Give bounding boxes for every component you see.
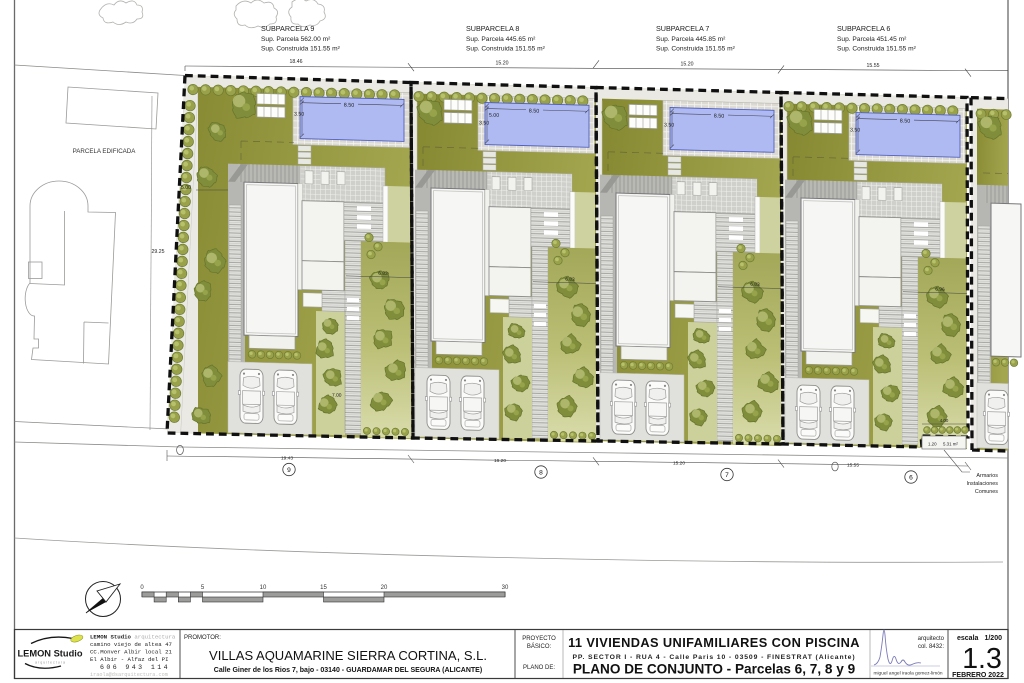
svg-text:VILLAS AQUAMARINE SIERRA CORTI: VILLAS AQUAMARINE SIERRA CORTINA, S.L. <box>209 648 487 663</box>
svg-text:Sup. Parcela 445.65 m²: Sup. Parcela 445.65 m² <box>466 36 536 43</box>
svg-text:LEMON Studio arquitectura: LEMON Studio arquitectura <box>90 634 176 641</box>
svg-text:20: 20 <box>381 585 388 591</box>
svg-text:Sup. Construida 151.55 m²: Sup. Construida 151.55 m² <box>466 46 546 53</box>
svg-text:col. 8432:: col. 8432: <box>918 644 944 650</box>
svg-text:8.50: 8.50 <box>714 113 724 119</box>
svg-text:15.20: 15.20 <box>673 461 685 467</box>
svg-text:6: 6 <box>909 474 913 481</box>
svg-text:7: 7 <box>725 472 729 479</box>
svg-text:arquitecto: arquitecto <box>918 636 945 642</box>
svg-text:8: 8 <box>539 469 543 476</box>
svg-text:15: 15 <box>320 585 327 591</box>
svg-text:SUBPARCELA 8: SUBPARCELA 8 <box>466 24 519 33</box>
svg-text:1.3: 1.3 <box>962 643 1002 675</box>
svg-text:Armarios: Armarios <box>976 473 998 479</box>
svg-text:PLANO DE CONJUNTO - Parcelas 6: PLANO DE CONJUNTO - Parcelas 6, 7, 8 y 9 <box>573 662 856 677</box>
svg-text:BÁSICO:: BÁSICO: <box>527 643 552 650</box>
svg-text:LEMON Studio: LEMON Studio <box>17 649 82 659</box>
svg-text:15.55: 15.55 <box>867 63 880 69</box>
svg-text:PROYECTO: PROYECTO <box>522 636 556 642</box>
svg-text:Sup. Construida 151.55 m²: Sup. Construida 151.55 m² <box>837 46 917 53</box>
svg-text:Sup. Construida 151.55 m²: Sup. Construida 151.55 m² <box>656 46 736 53</box>
svg-text:15.55: 15.55 <box>847 463 859 469</box>
svg-text:miguel angel iraola gomez-limó: miguel angel iraola gomez-limón <box>873 671 942 677</box>
svg-text:3.50: 3.50 <box>850 127 860 133</box>
svg-text:1.20: 1.20 <box>928 442 937 447</box>
svg-text:15.20: 15.20 <box>496 61 509 67</box>
svg-text:18.46: 18.46 <box>290 59 303 65</box>
svg-text:SUBPARCELA 6: SUBPARCELA 6 <box>837 24 890 33</box>
svg-text:15.20: 15.20 <box>681 62 694 68</box>
svg-text:FEBRERO 2022: FEBRERO 2022 <box>952 672 1004 679</box>
svg-text:19.43: 19.43 <box>281 456 293 462</box>
svg-text:10: 10 <box>260 585 267 591</box>
svg-text:29.25: 29.25 <box>152 249 165 255</box>
svg-text:5.31 m²: 5.31 m² <box>943 442 958 447</box>
svg-text:9: 9 <box>287 467 291 474</box>
svg-text:Calle Giner de los Rios 7, baj: Calle Giner de los Rios 7, bajo - 03140 … <box>214 667 482 674</box>
svg-text:6.83: 6.83 <box>750 282 760 288</box>
svg-text:6.83: 6.83 <box>378 271 388 277</box>
svg-text:Sup. Parcela 445.85 m²: Sup. Parcela 445.85 m² <box>656 36 726 43</box>
svg-text:PROMOTOR:: PROMOTOR: <box>184 635 221 641</box>
svg-text:5.00: 5.00 <box>181 185 191 191</box>
svg-text:Sup. Parcela 562.00 m²: Sup. Parcela 562.00 m² <box>261 36 331 43</box>
svg-text:1/200: 1/200 <box>984 635 1002 642</box>
svg-text:a r q u i t e c t u r a: a r q u i t e c t u r a <box>35 661 65 665</box>
svg-text:16.20: 16.20 <box>494 458 506 464</box>
svg-text:6.96: 6.96 <box>935 287 945 293</box>
svg-text:CC.Monver Albir local 21: CC.Monver Albir local 21 <box>90 649 173 656</box>
svg-text:606 943 114: 606 943 114 <box>100 664 170 671</box>
svg-text:Instalaciones: Instalaciones <box>967 481 999 487</box>
svg-text:8.50: 8.50 <box>529 108 539 114</box>
svg-text:11 VIVIENDAS UNIFAMILIARES CON: 11 VIVIENDAS UNIFAMILIARES CON PISCINA <box>568 635 860 650</box>
svg-text:Comunes: Comunes <box>975 489 998 495</box>
svg-text:6.83: 6.83 <box>565 277 575 283</box>
svg-text:7.00: 7.00 <box>332 392 342 398</box>
svg-text:PP. SECTOR I - RUA 4 - Calle P: PP. SECTOR I - RUA 4 - Calle Paris 10 - … <box>572 654 855 661</box>
svg-text:Sup. Parcela 451.45 m²: Sup. Parcela 451.45 m² <box>837 36 907 43</box>
svg-text:8.50: 8.50 <box>900 118 910 124</box>
svg-text:3.50: 3.50 <box>294 111 304 117</box>
svg-text:4.00: 4.00 <box>940 418 949 423</box>
svg-text:escala: escala <box>957 635 979 642</box>
svg-text:30: 30 <box>502 585 509 591</box>
svg-text:El Albir - Alfaz del PI: El Albir - Alfaz del PI <box>90 656 169 663</box>
svg-text:Sup. Construida 151.55 m²: Sup. Construida 151.55 m² <box>261 46 341 53</box>
svg-text:iraola@dsarquitectura.com: iraola@dsarquitectura.com <box>90 672 168 678</box>
svg-text:3.50: 3.50 <box>664 122 674 128</box>
svg-text:camino viejo de altea 47: camino viejo de altea 47 <box>90 641 172 648</box>
svg-text:SUBPARCELA 9: SUBPARCELA 9 <box>261 24 314 33</box>
svg-text:8.50: 8.50 <box>344 102 354 108</box>
svg-text:3.50: 3.50 <box>479 120 489 126</box>
svg-text:SUBPARCELA 7: SUBPARCELA 7 <box>656 24 709 33</box>
svg-text:PARCELA EDIFICADA: PARCELA EDIFICADA <box>73 148 137 155</box>
svg-text:PLANO DE:: PLANO DE: <box>523 665 555 671</box>
svg-text:5.00: 5.00 <box>489 113 499 119</box>
